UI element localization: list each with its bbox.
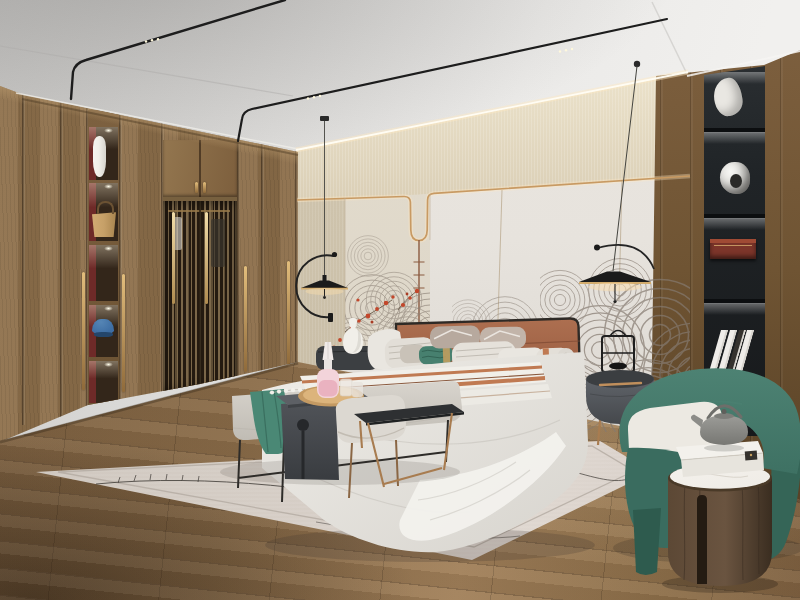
drum-notch — [697, 495, 707, 584]
glass — [352, 382, 363, 397]
ceiling-track-lights — [71, 0, 667, 141]
scene-detail-overlay — [0, 0, 800, 600]
glass — [340, 379, 352, 396]
bedroom-scene — [0, 0, 800, 600]
chair-leg — [633, 508, 661, 575]
